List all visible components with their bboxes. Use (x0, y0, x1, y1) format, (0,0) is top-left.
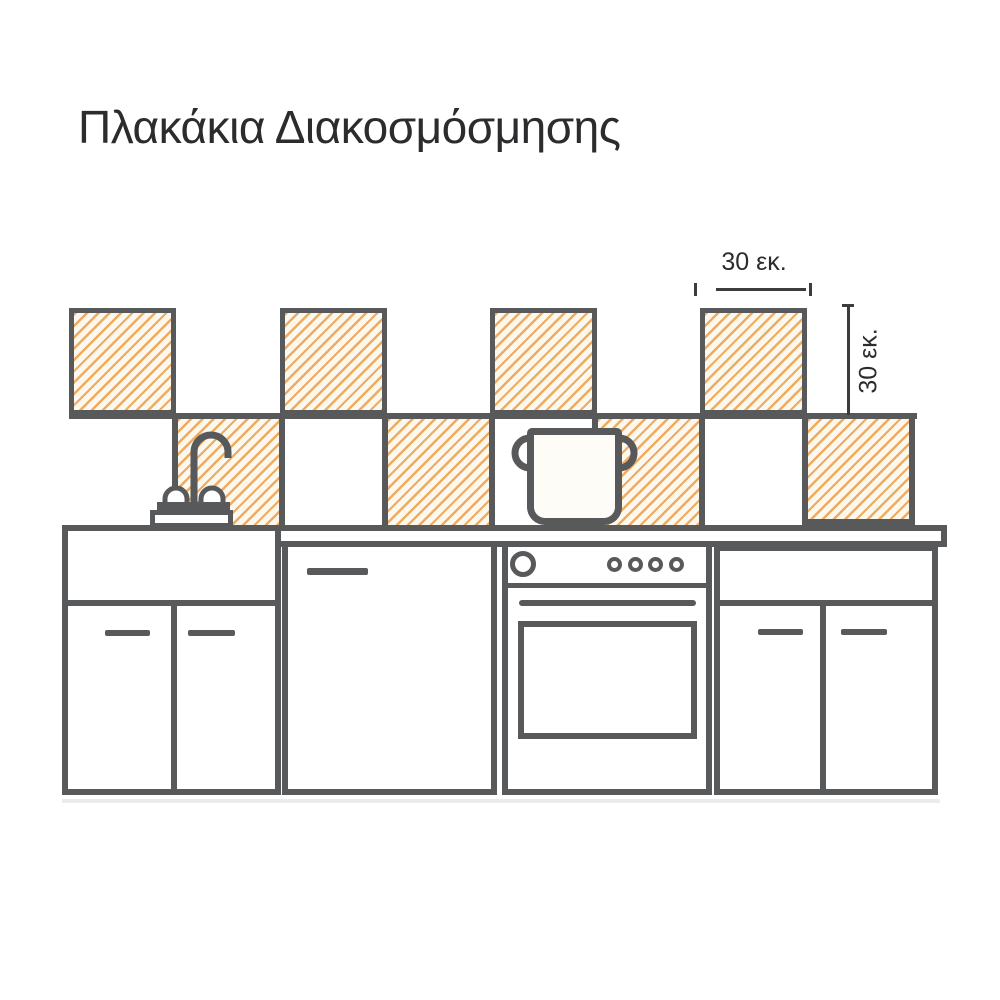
door-handle (188, 630, 235, 636)
oven-knob-small (669, 557, 684, 572)
door-handle (758, 629, 803, 635)
oven-control-panel-line (508, 583, 706, 588)
pot-icon (527, 428, 622, 525)
oven-knob-small (628, 557, 643, 572)
oven-door-window (518, 621, 697, 739)
sink-cabinet-door-divider (171, 606, 177, 789)
right-cabinet-drawer-divider (720, 600, 932, 606)
oven (502, 541, 712, 795)
dishwasher-handle (307, 568, 368, 575)
door-handle (105, 630, 150, 636)
oven-knob-small (648, 557, 663, 572)
door-handle (841, 629, 887, 635)
floor-shadow-line (62, 799, 940, 803)
oven-knob-large (510, 551, 536, 577)
faucet-icon (165, 435, 228, 508)
sink-cabinet (62, 525, 281, 795)
oven-knob-small (607, 557, 622, 572)
dishwasher (282, 541, 497, 795)
fixtures-linework (0, 0, 1000, 1000)
kitchen-tile-diagram: Πλακάκια Διακοσμόσμησης 30 εκ. 30 εκ. (0, 0, 1000, 1000)
right-cabinet (714, 545, 938, 795)
right-cabinet-door-divider (820, 606, 826, 789)
oven-handle (519, 600, 696, 606)
